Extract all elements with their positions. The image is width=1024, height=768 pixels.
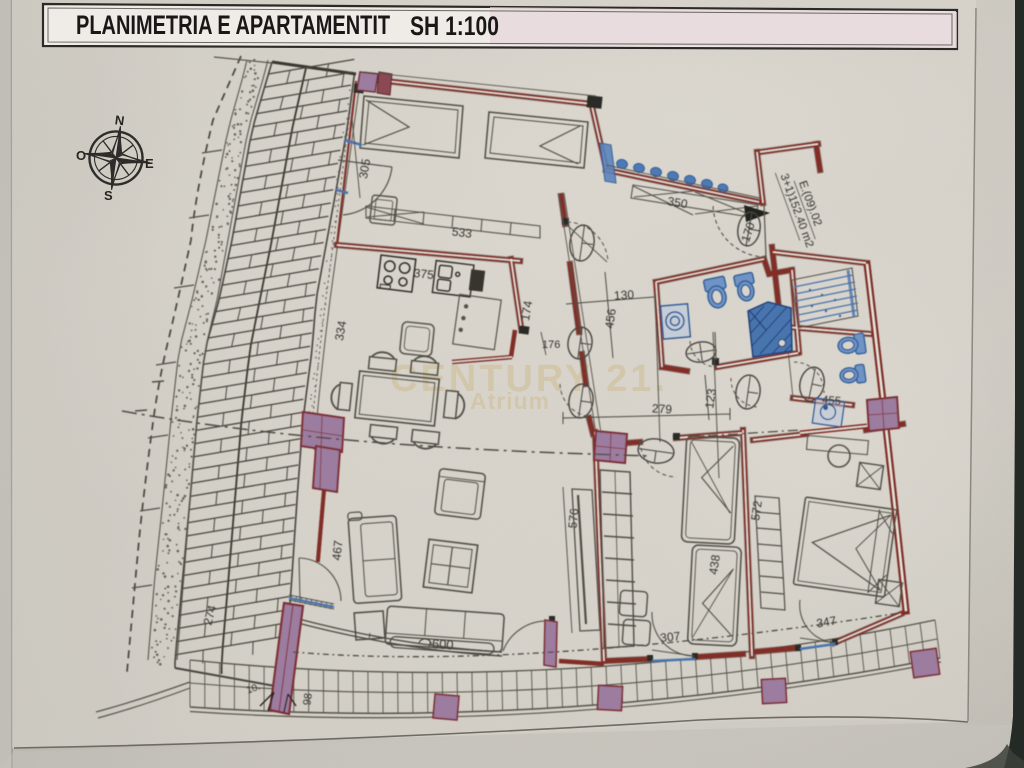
svg-text:456: 456 — [602, 307, 619, 329]
svg-text:130: 130 — [614, 287, 635, 302]
svg-text:SH 1:100: SH 1:100 — [410, 12, 499, 42]
svg-text:98: 98 — [301, 692, 315, 706]
svg-text:467: 467 — [329, 539, 345, 561]
svg-text:E: E — [145, 156, 154, 171]
svg-text:438: 438 — [706, 553, 723, 575]
svg-text:279: 279 — [652, 401, 673, 416]
svg-text:455: 455 — [821, 394, 841, 408]
svg-text:S: S — [104, 188, 113, 203]
svg-text:PLANIMETRIA E APARTAMENTIT: PLANIMETRIA E APARTAMENTIT — [76, 10, 391, 41]
svg-text:533: 533 — [451, 224, 473, 240]
svg-text:375: 375 — [413, 266, 435, 282]
svg-text:O: O — [76, 148, 86, 163]
svg-text:Atrium: Atrium — [470, 388, 550, 414]
